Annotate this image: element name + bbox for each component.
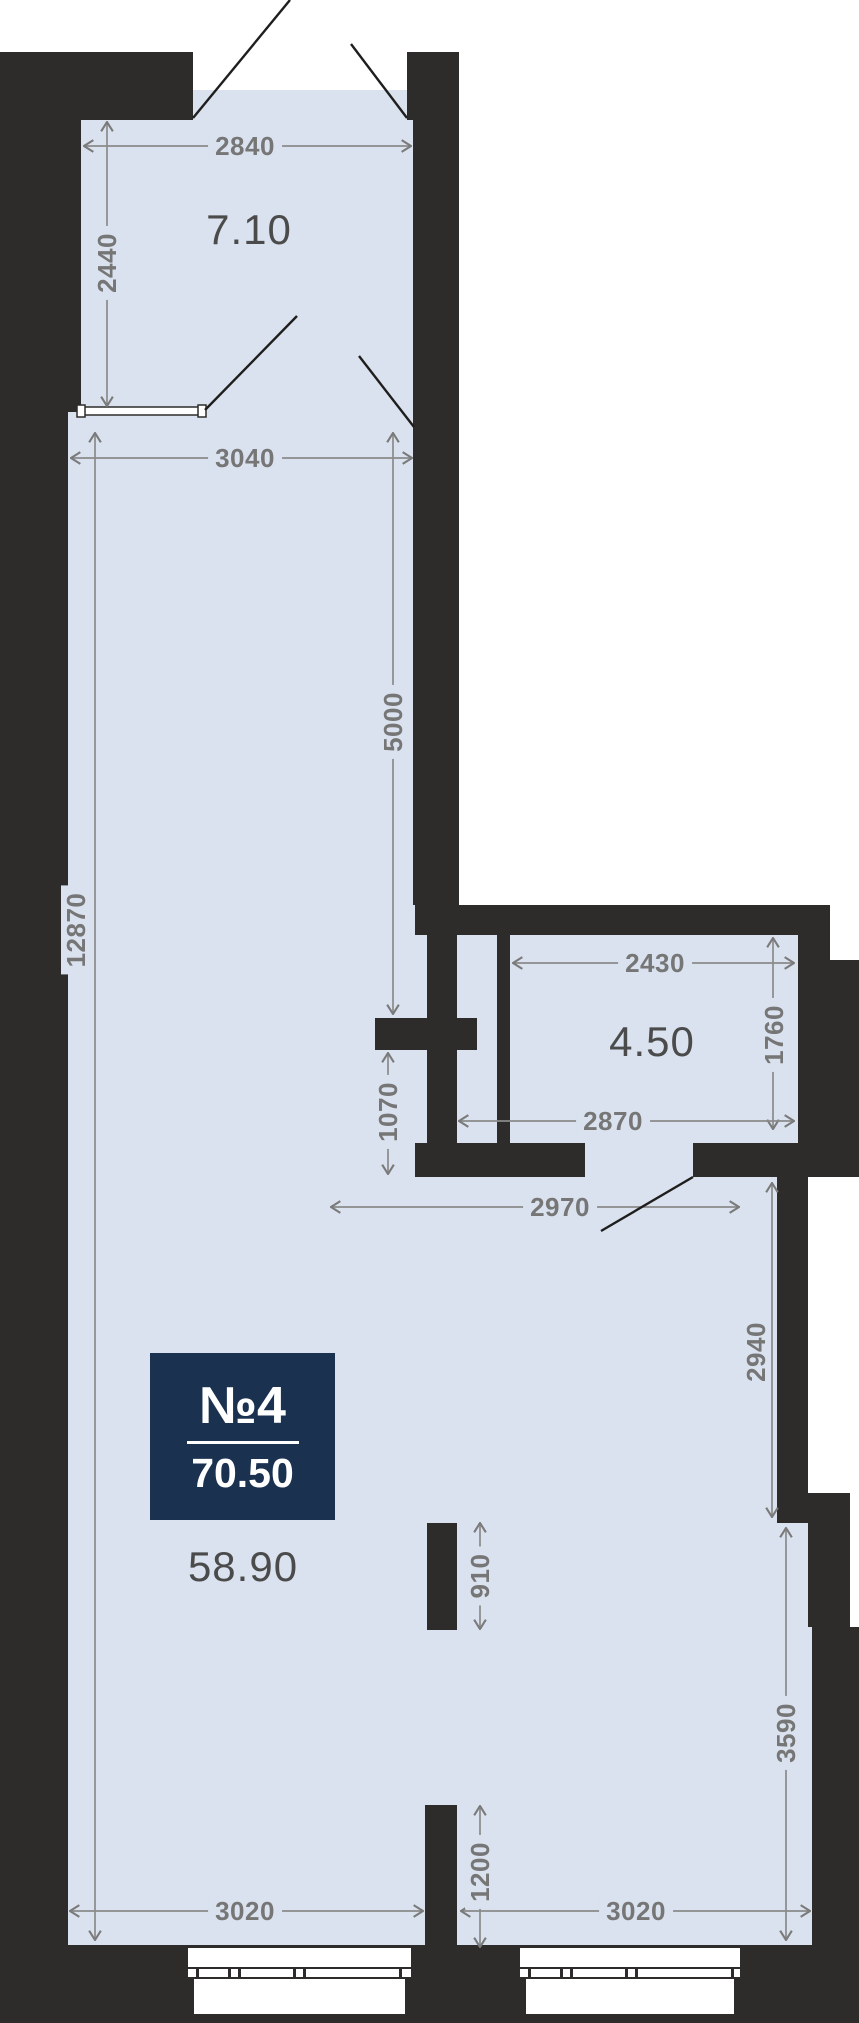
dim-label-2440: 2440 xyxy=(92,226,122,300)
dim-label-3040: 3040 xyxy=(208,443,282,473)
dim-label-2940: 2940 xyxy=(741,1315,771,1389)
dim-label-12870: 12870 xyxy=(61,886,91,975)
dim-label-1200: 1200 xyxy=(465,1835,495,1909)
dim-label-2840: 2840 xyxy=(208,131,282,161)
badge-divider xyxy=(187,1441,299,1444)
area-label-living: 58.90 xyxy=(188,1543,298,1591)
dim-label-2870: 2870 xyxy=(576,1106,650,1136)
dim-label-910: 910 xyxy=(465,1547,495,1606)
floor-plan-svg xyxy=(0,0,859,2023)
dim-label-3590: 3590 xyxy=(771,1696,801,1770)
area-label-bathroom: 4.50 xyxy=(609,1018,695,1066)
balcony-window-symbol xyxy=(77,405,206,417)
dim-label-1760: 1760 xyxy=(759,998,789,1072)
dim-label-3020-left: 3020 xyxy=(208,1896,282,1926)
window-symbol-right xyxy=(519,1947,741,2015)
dim-label-2970: 2970 xyxy=(523,1192,597,1222)
unit-number: №4 xyxy=(199,1380,286,1432)
dim-label-3020-right: 3020 xyxy=(599,1896,673,1926)
dim-label-1070: 1070 xyxy=(373,1075,403,1149)
area-label-balcony: 7.10 xyxy=(206,206,292,254)
unit-badge: №4 70.50 xyxy=(150,1353,335,1520)
unit-total-area: 70.50 xyxy=(191,1453,294,1494)
dim-label-5000: 5000 xyxy=(378,685,408,759)
window-symbol-left xyxy=(187,1947,412,2015)
dim-label-2430: 2430 xyxy=(618,948,692,978)
floor-plan: 2840 2440 3040 5000 12870 2430 1760 2870… xyxy=(0,0,859,2023)
